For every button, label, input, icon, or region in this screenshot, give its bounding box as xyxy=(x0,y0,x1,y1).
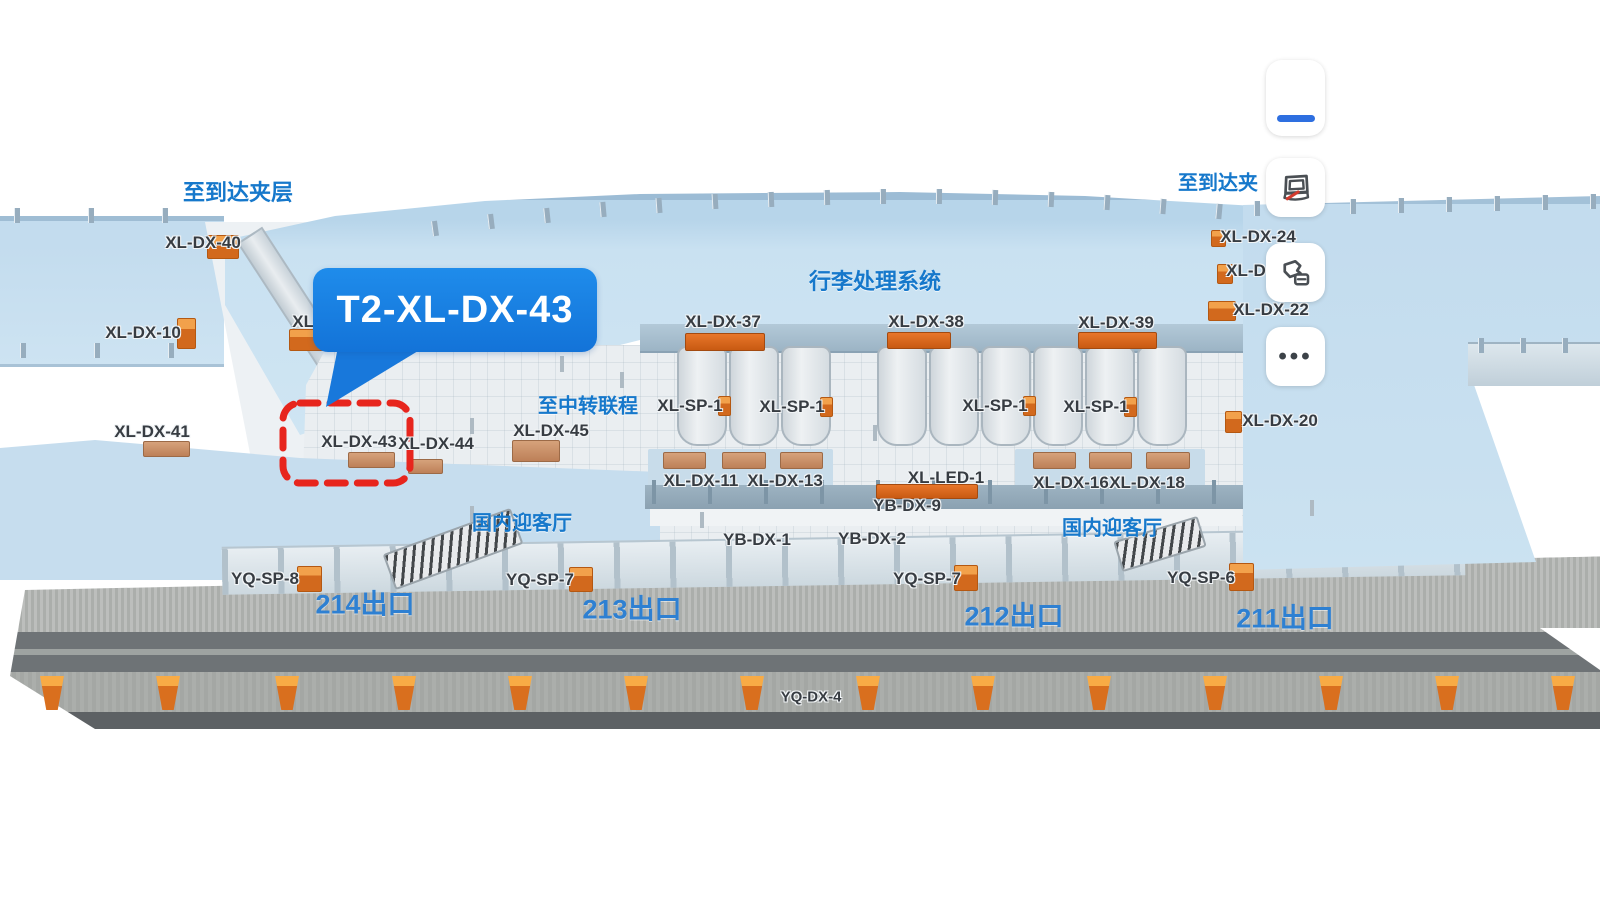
exit-label: 213出口 xyxy=(582,588,681,627)
wall-pillar xyxy=(88,208,94,223)
conveyor-bar-marker xyxy=(1078,332,1157,349)
cropped-toolbar-button[interactable] xyxy=(1266,60,1325,136)
wall-post xyxy=(652,480,656,504)
wall-pillar xyxy=(992,190,998,205)
road-lane xyxy=(0,712,1600,729)
right-inner-wall xyxy=(1468,342,1600,386)
device-label-xl-sp-1[interactable]: XL-SP-1 xyxy=(962,396,1027,416)
blue-dash-icon xyxy=(1277,115,1315,122)
wall-pillar xyxy=(20,343,26,358)
device-label-yq-sp-8[interactable]: YQ-SP-8 xyxy=(231,569,299,589)
device-label-xl-dx-13[interactable]: XL-DX-13 xyxy=(747,471,823,491)
conveyor-bar-marker xyxy=(1033,452,1076,469)
wall-pillar xyxy=(1590,194,1596,209)
exit-3d-view-button[interactable] xyxy=(1266,158,1325,217)
device-label-yq-sp-7[interactable]: YQ-SP-7 xyxy=(506,570,574,590)
zone-label: 至中转联程 xyxy=(538,390,638,419)
floor-switch-icon xyxy=(1278,255,1314,291)
zone-label: 国内迎客厅 xyxy=(472,507,572,536)
zone-label: 行李处理系统 xyxy=(809,264,941,296)
wall-pillar xyxy=(1398,198,1404,213)
wall-pillar xyxy=(936,189,942,204)
wall-pillar xyxy=(1542,195,1548,210)
device-label-xl-d[interactable]: XL-D xyxy=(1226,261,1266,281)
device-label-xl-dx-37[interactable]: XL-DX-37 xyxy=(685,312,761,332)
device-label-xl-dx-11[interactable]: XL-DX-11 xyxy=(664,471,739,491)
device-label-xl-dx-38[interactable]: XL-DX-38 xyxy=(888,312,964,332)
wall-pillar xyxy=(162,208,168,223)
device-label-xl-dx-44[interactable]: XL-DX-44 xyxy=(398,434,474,454)
claim-island xyxy=(877,346,927,446)
conveyor-bar-marker xyxy=(780,452,823,469)
wall-pillar xyxy=(599,202,606,217)
device-label-xl-sp-1[interactable]: XL-SP-1 xyxy=(1063,397,1128,417)
device-label-yb-dx-9[interactable]: YB-DX-9 xyxy=(873,496,941,516)
floor-switch-button[interactable] xyxy=(1266,243,1325,302)
conveyor-bar-marker xyxy=(512,440,560,462)
exit-label: 214出口 xyxy=(315,583,414,622)
wall-pillar xyxy=(1494,196,1500,211)
wall-pillar xyxy=(1159,199,1166,214)
wall-pillar xyxy=(1254,201,1260,216)
floor-post xyxy=(700,512,704,528)
device-label-yq-sp-6[interactable]: YQ-SP-6 xyxy=(1167,568,1235,588)
more-button[interactable]: ••• xyxy=(1266,327,1325,386)
claim-island xyxy=(1033,346,1083,446)
wall-post xyxy=(988,480,992,504)
claim-island xyxy=(1137,346,1187,446)
wall-pillar xyxy=(14,208,20,223)
terminal-map-canvas[interactable]: T2-XL-DX-43 ••• XL-DX-40XL-DX-10XL-DX-41… xyxy=(0,0,1600,900)
device-label-xl-sp-1[interactable]: XL-SP-1 xyxy=(759,397,824,417)
conveyor-bar-marker xyxy=(143,441,190,457)
wall-pillar xyxy=(824,190,830,205)
wall-pillar xyxy=(1350,199,1356,214)
zone-label: 国内迎客厅 xyxy=(1062,512,1162,541)
floor-post xyxy=(620,372,624,388)
exit-label: 212出口 xyxy=(964,595,1063,634)
wall-pillar xyxy=(655,198,662,213)
device-label-xl-dx-45[interactable]: XL-DX-45 xyxy=(513,421,589,441)
device-callout[interactable]: T2-XL-DX-43 xyxy=(313,268,597,352)
ellipsis-icon: ••• xyxy=(1278,345,1312,369)
screen-frame-slash-icon xyxy=(1278,170,1314,206)
exit-label: 211出口 xyxy=(1236,597,1334,636)
wall-pillar xyxy=(1104,195,1111,210)
device-label-xl-sp-1[interactable]: XL-SP-1 xyxy=(657,396,722,416)
wall-pillar xyxy=(768,191,775,206)
conveyor-bar-marker xyxy=(685,333,765,351)
callout-tail xyxy=(318,345,438,415)
claim-island xyxy=(729,346,779,446)
claim-island xyxy=(781,346,831,446)
device-label-xl-dx-10[interactable]: XL-DX-10 xyxy=(105,323,181,343)
conveyor-bar-marker xyxy=(1146,452,1190,469)
floor-post xyxy=(873,425,877,441)
wall-pillar xyxy=(1048,192,1055,207)
device-cube-marker xyxy=(1208,301,1236,321)
wall-pillar xyxy=(1446,197,1452,212)
wall-pillar xyxy=(880,189,886,204)
device-label-xl-dx-41[interactable]: XL-DX-41 xyxy=(114,422,190,442)
wall-pillar xyxy=(94,343,100,358)
device-label-xl-dx-20[interactable]: XL-DX-20 xyxy=(1242,411,1318,431)
device-label-xl-dx-40[interactable]: XL-DX-40 xyxy=(165,233,241,253)
conveyor-bar-marker xyxy=(663,452,706,469)
floor-post xyxy=(470,418,474,434)
wall-pillar xyxy=(1520,338,1526,353)
conveyor-bar-marker xyxy=(722,452,766,469)
zone-label: 至到达夹层 xyxy=(183,175,293,207)
device-label-xl-dx-39[interactable]: XL-DX-39 xyxy=(1078,313,1154,333)
device-label-xl-dx-16[interactable]: XL-DX-16 xyxy=(1033,473,1109,493)
wall-pillar xyxy=(712,194,719,209)
road-lane xyxy=(0,655,1600,672)
device-cube-marker xyxy=(1225,411,1242,433)
wall-pillar xyxy=(1478,338,1484,353)
device-label-xl-dx-22[interactable]: XL-DX-22 xyxy=(1233,300,1309,320)
conveyor-bar-marker xyxy=(887,332,951,349)
device-label-yq-dx-4[interactable]: YQ-DX-4 xyxy=(781,689,842,706)
device-label-xl-dx-18[interactable]: XL-DX-18 xyxy=(1109,473,1185,493)
device-label-yq-sp-7[interactable]: YQ-SP-7 xyxy=(893,569,961,589)
wall-pillar xyxy=(168,343,174,358)
claim-island xyxy=(1085,346,1135,446)
wall-post xyxy=(1212,480,1216,504)
wall-pillar xyxy=(1562,338,1568,353)
conveyor-bar-marker xyxy=(1089,452,1132,469)
road-lane xyxy=(0,632,1600,649)
floor-post xyxy=(1310,500,1314,516)
zone-label: 至到达夹 xyxy=(1178,167,1258,196)
device-label-xl-led-1[interactable]: XL-LED-1 xyxy=(908,468,985,488)
device-label-xl-dx-43[interactable]: XL-DX-43 xyxy=(321,432,397,452)
device-label-yb-dx-2[interactable]: YB-DX-2 xyxy=(838,529,906,549)
floor-post xyxy=(560,356,564,372)
device-label-yb-dx-1[interactable]: YB-DX-1 xyxy=(723,530,791,550)
